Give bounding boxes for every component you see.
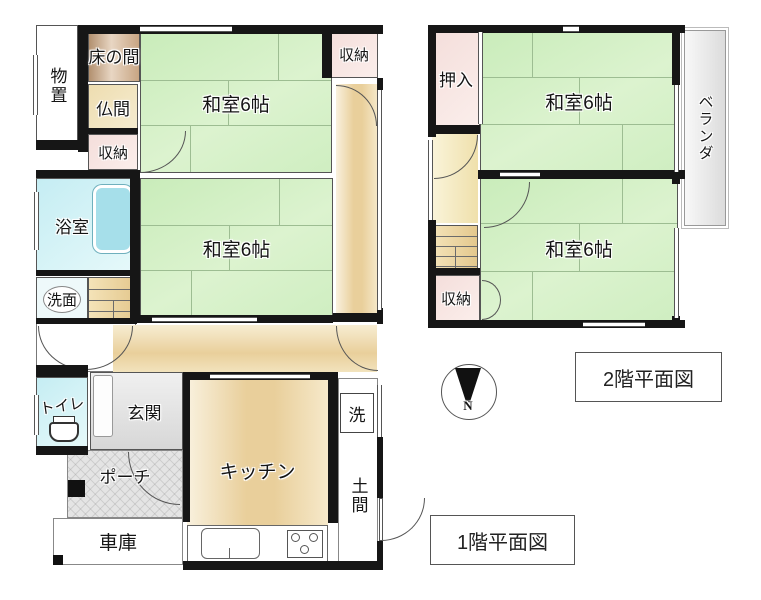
tatami-line <box>141 80 331 81</box>
room-label: 物置 <box>37 26 77 146</box>
tatami-line <box>141 125 331 126</box>
window-symbol <box>563 26 579 32</box>
wall-segment <box>78 25 88 152</box>
bathtub <box>93 185 133 253</box>
post-square <box>53 555 63 565</box>
room-label: 車庫 <box>54 519 182 564</box>
floorplan-image: 物置 床の間 仏間 収納 和室6帖 収納 浴室 <box>0 0 761 600</box>
tatami-line <box>622 124 623 173</box>
washbasin <box>43 286 81 313</box>
wall-segment <box>36 170 137 178</box>
stove-burner <box>291 533 300 542</box>
room-kitchen <box>187 378 328 525</box>
wall-segment <box>88 128 138 134</box>
wall-segment <box>428 320 685 328</box>
tatami-line <box>279 179 280 225</box>
window-symbol <box>674 85 679 172</box>
wall-segment <box>333 313 383 322</box>
room-label: 床の間 <box>89 29 139 81</box>
floor2-caption-label: 2階平面図 <box>603 363 694 392</box>
wall-segment <box>328 372 338 523</box>
room-washitsu-1f-mid: 和室6帖 <box>140 178 333 318</box>
compass-needle-icon <box>455 368 481 408</box>
wall-segment <box>428 25 436 137</box>
stairs-2f <box>432 225 478 273</box>
garage: 車庫 <box>53 518 183 565</box>
room-washitsu-2f-north: 和室6帖 <box>480 28 678 174</box>
sink-drain <box>229 548 230 559</box>
tatami-line <box>481 124 677 125</box>
window-symbol <box>140 26 232 32</box>
floor1-caption-label: 1階平面図 <box>457 526 548 555</box>
tatami-line <box>579 77 580 125</box>
room-label: 土間 <box>339 451 377 541</box>
room-butsuma: 仏間 <box>88 84 138 130</box>
window-symbol <box>377 385 382 437</box>
tatami-line <box>141 270 332 271</box>
room-label: ベランダ <box>685 31 725 225</box>
room-genkan: 玄関 <box>90 372 183 450</box>
wall-segment <box>377 541 383 570</box>
room-shuno-right: 収納 <box>330 30 378 78</box>
post-square <box>68 480 85 497</box>
window-symbol <box>34 395 39 435</box>
room-label: 玄関 <box>107 373 182 449</box>
tatami-line <box>532 29 533 77</box>
wall-segment <box>36 365 88 377</box>
door-leaf <box>379 498 383 541</box>
tatami-line <box>622 175 623 223</box>
veranda: ベランダ <box>684 30 726 226</box>
toilet-tank <box>53 416 75 423</box>
wall-segment <box>672 28 680 85</box>
window-symbol <box>33 55 38 115</box>
tatami-line <box>532 271 533 321</box>
wall-segment <box>428 125 480 134</box>
room-senmen: 洗面 <box>36 277 88 322</box>
kitchen-sink <box>201 528 260 559</box>
window-symbol <box>583 322 645 327</box>
room-oshiire: 押入 <box>432 28 480 128</box>
room-monooki: 物置 <box>36 25 78 147</box>
wall-segment <box>672 170 680 184</box>
wall-segment <box>36 140 88 150</box>
tatami-line <box>228 80 229 126</box>
wall-segment <box>130 170 140 322</box>
room-label: 和室6帖 <box>141 179 332 317</box>
room-toilet: トイレ <box>36 377 88 448</box>
stove-burner <box>300 545 309 554</box>
window-symbol <box>500 172 540 177</box>
stair-line <box>433 236 477 237</box>
wall-segment <box>428 25 685 33</box>
floor2-caption: 2階平面図 <box>575 352 722 402</box>
tatami-line <box>191 270 192 317</box>
wall-segment <box>377 78 383 90</box>
stair-line <box>89 289 136 290</box>
room-label: 収納 <box>433 276 479 321</box>
room-label: 押入 <box>433 29 479 127</box>
wall-segment <box>428 268 480 275</box>
tatami-line <box>190 125 191 172</box>
room-yokushitsu: 浴室 <box>36 178 136 272</box>
wall-segment <box>322 30 332 78</box>
room-shuno-2f: 収納 <box>432 275 480 322</box>
stove-burner <box>309 533 318 542</box>
window-symbol <box>152 317 257 322</box>
wall-segment <box>377 308 383 324</box>
window-symbol <box>674 228 679 318</box>
room-label: 収納 <box>89 135 137 169</box>
tatami-line <box>278 34 279 80</box>
room-shuno-left: 収納 <box>88 134 138 170</box>
window-symbol <box>210 374 310 379</box>
window-symbol <box>34 192 39 250</box>
window-symbol <box>478 32 483 124</box>
wall-segment <box>36 270 136 276</box>
floor1-caption: 1階平面図 <box>430 515 575 565</box>
door-arc <box>381 498 425 541</box>
wall-segment <box>36 446 88 455</box>
tatami-line <box>481 271 677 272</box>
wall-segment <box>183 372 190 522</box>
window-symbol <box>428 140 433 220</box>
tatami-line <box>579 223 580 271</box>
room-label: 仏間 <box>89 85 137 129</box>
toilet-fixture <box>49 422 79 442</box>
shoe-cabinet <box>93 375 113 437</box>
window-symbol <box>377 90 382 310</box>
wall-segment <box>36 318 137 324</box>
laundry-box <box>340 393 374 433</box>
wall-segment <box>183 561 380 570</box>
room-tokonoma: 床の間 <box>88 28 140 82</box>
room-label: 収納 <box>331 31 377 77</box>
tatami-line <box>141 225 332 226</box>
tatami-line <box>229 225 230 271</box>
wall-segment <box>377 437 383 498</box>
